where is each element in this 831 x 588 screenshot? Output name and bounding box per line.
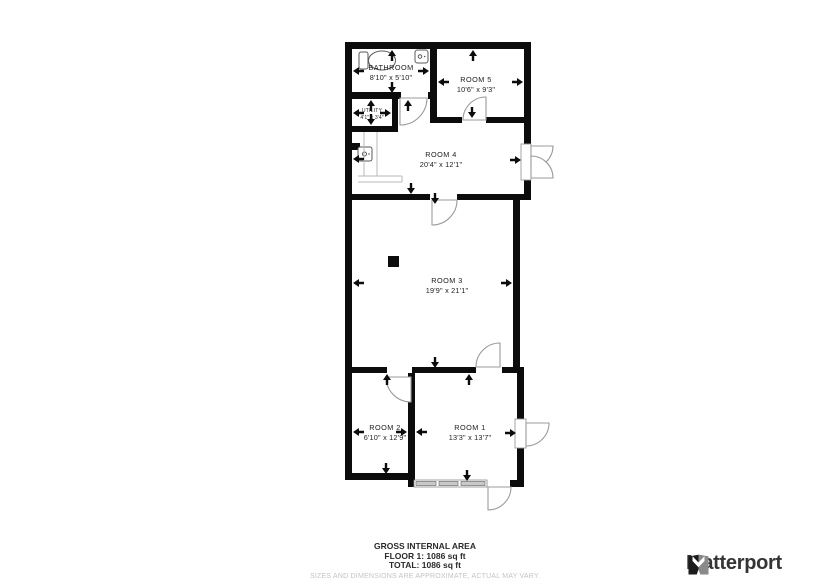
room5-door-icon — [463, 97, 486, 120]
disclaimer-text: SIZES AND DIMENSIONS ARE APPROXIMATE, AC… — [225, 573, 625, 580]
column-pillar — [388, 256, 399, 267]
total-area-line: TOTAL: 1086 sq ft — [225, 561, 625, 571]
room1-side-door-icon — [526, 423, 549, 446]
room5-dims-label: 10'6" x 9'3" — [457, 85, 496, 94]
bathroom-name-label: BATHROOM — [368, 63, 413, 72]
window-icon — [416, 482, 436, 486]
room3-dims-label: 19'9" x 21'1" — [426, 286, 469, 295]
room1-dims-label: 13'3" x 13'7" — [449, 433, 492, 442]
sink-icon — [415, 50, 428, 63]
utility-name-label: UTILITY — [362, 108, 383, 114]
room2-door-icon — [386, 377, 411, 402]
bathroom-door-icon — [400, 98, 427, 125]
room3-name-label: ROOM 3 — [431, 276, 463, 285]
window-icon — [461, 482, 485, 486]
room3-top-door-icon — [432, 200, 457, 225]
room1-exterior-door-icon — [488, 487, 511, 510]
french-door-bottom-leaf-icon — [531, 156, 553, 178]
room1-name-label: ROOM 1 — [454, 423, 486, 432]
room2-dims-label: 6'10" x 12'9" — [364, 433, 407, 442]
room2-name-label: ROOM 2 — [369, 423, 401, 432]
window-icon — [439, 482, 458, 486]
room5-name-label: ROOM 5 — [460, 75, 492, 84]
room3-bottom-door-icon — [476, 343, 500, 367]
room4-dims-label: 20'4" x 12'1" — [420, 160, 463, 169]
room4-name-label: ROOM 4 — [425, 150, 457, 159]
window-band — [414, 480, 487, 487]
bathroom-dims-label: 8'10" x 5'10" — [370, 73, 413, 82]
floorplan-page: BATHROOM 8'10" x 5'10" ROOM 5 10'6" x 9'… — [0, 0, 831, 588]
matterport-mark-icon — [686, 552, 711, 579]
floorplan-drawing: BATHROOM 8'10" x 5'10" ROOM 5 10'6" x 9'… — [0, 0, 831, 588]
utility-dims-label: 4'1" x 3'4" — [360, 115, 383, 121]
matterport-logo: Matterport — [686, 552, 782, 575]
area-summary: GROSS INTERNAL AREA FLOOR 1: 1086 sq ft … — [225, 542, 625, 580]
